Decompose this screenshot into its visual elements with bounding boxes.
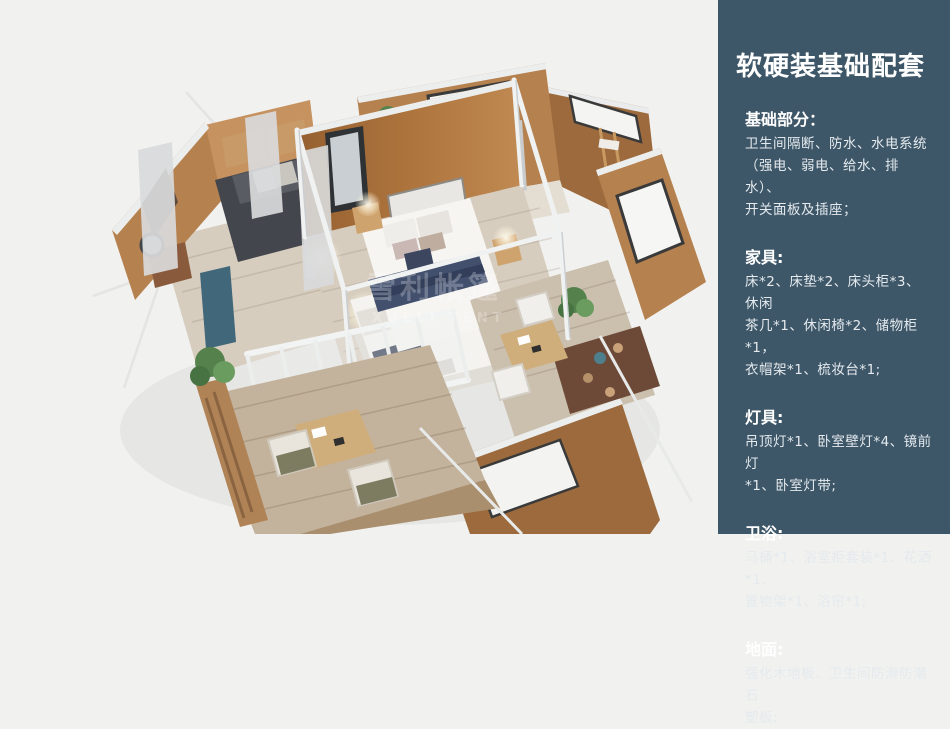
section-line: （强电、弱电、给水、排水）、 [745, 155, 932, 199]
section-line: 开关面板及插座； [745, 199, 932, 221]
section-line: 床*2、床垫*2、床头柜*3、休闲 [745, 271, 932, 315]
watermark-text-en: XUELI TENT [372, 311, 507, 326]
section-heading: 卫浴: [745, 523, 932, 545]
panel-section: 基础部分：卫生间隔断、防水、水电系统（强电、弱电、给水、排水）、开关面板及插座； [745, 109, 932, 221]
panel-section: 家具:床*2、床垫*2、床头柜*3、休闲茶几*1、休闲椅*2、储物柜*1，衣帽架… [745, 247, 932, 381]
panel-section: 灯具:吊顶灯*1、卧室壁灯*4、镜前灯*1、卧室灯带; [745, 407, 932, 497]
panel-title: 软硬装基础配套 [736, 46, 923, 83]
teal-curtain-left [200, 266, 236, 349]
section-heading: 灯具: [745, 407, 932, 429]
section-line: 衣帽架*1、梳妆台*1; [745, 359, 932, 381]
section-line: 强化木地板、卫生间防滑防潮石 [745, 663, 932, 707]
section-heading: 地面: [745, 639, 932, 661]
section-line: 塑板; [745, 707, 932, 729]
panel-section: 地面:强化木地板、卫生间防滑防潮石塑板; [745, 639, 932, 729]
section-line: 吊顶灯*1、卧室壁灯*4、镜前灯 [745, 431, 932, 475]
info-panel: 软硬装基础配套 基础部分：卫生间隔断、防水、水电系统（强电、弱电、给水、排水）、… [718, 0, 950, 534]
watermark-text-cn: 雪利帐篷 [366, 271, 502, 306]
floorplan-render: 雪利帐篷 XUELI TENT [0, 0, 718, 534]
section-line: *1、卧室灯带; [745, 475, 932, 497]
section-heading: 基础部分： [745, 109, 932, 131]
watermark: 雪利帐篷 XUELI TENT [366, 271, 507, 326]
section-line: 马桶*1、浴室柜套装*1、花洒*1、 [745, 547, 932, 591]
section-heading: 家具: [745, 247, 932, 269]
section-line: 置物架*1、浴帘*1; [745, 591, 932, 613]
panel-section: 卫浴:马桶*1、浴室柜套装*1、花洒*1、置物架*1、浴帘*1; [745, 523, 932, 613]
section-line: 茶几*1、休闲椅*2、储物柜*1， [745, 315, 932, 359]
section-line: 卫生间隔断、防水、水电系统 [745, 133, 932, 155]
panel-sections: 基础部分：卫生间隔断、防水、水电系统（强电、弱电、给水、排水）、开关面板及插座；… [745, 109, 932, 729]
floorplan-render-area: 雪利帐篷 XUELI TENT [0, 0, 718, 534]
